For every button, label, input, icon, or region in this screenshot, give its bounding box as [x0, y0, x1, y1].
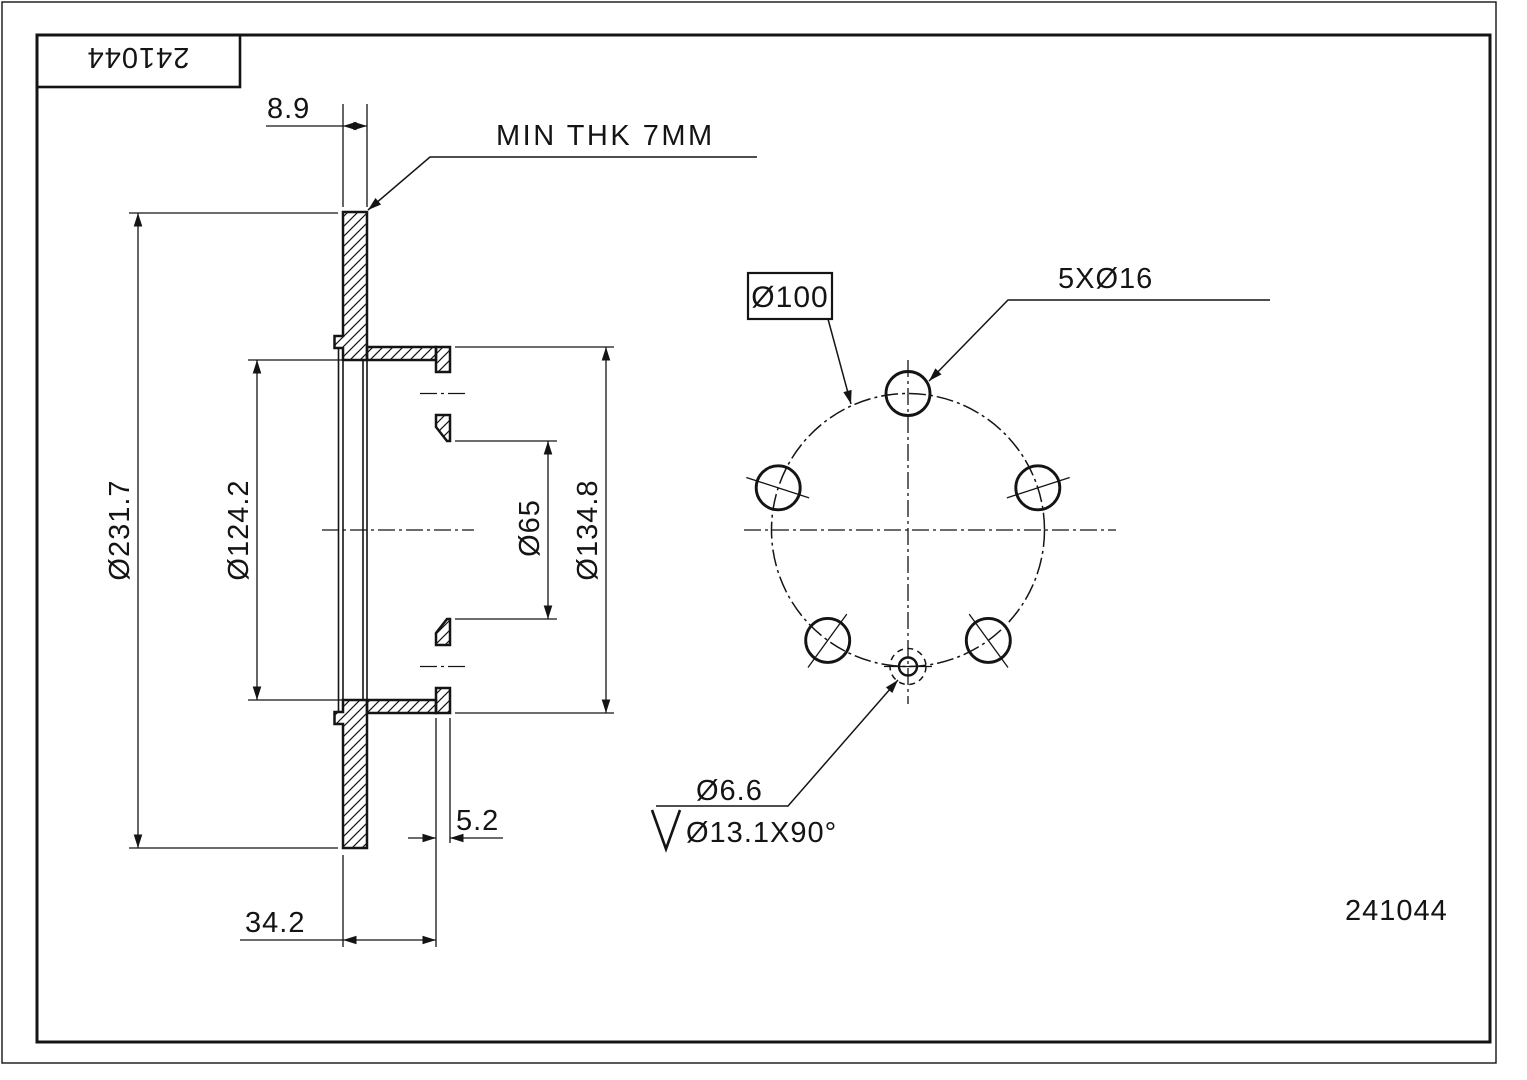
- dim-center-bore-label: Ø65: [514, 499, 546, 557]
- dim-thickness-label: 8.9: [267, 93, 310, 125]
- technical-drawing: 241044 241044: [0, 0, 1527, 1080]
- title-block-part-number: 241044: [87, 41, 190, 73]
- dim-hat-inner-diameter-label: Ø124.2: [223, 479, 255, 580]
- flange-upper-chamfer-section: [436, 415, 450, 441]
- face-view: Ø100 5XØ16 Ø6.6 Ø13.1X90°: [652, 263, 1270, 849]
- flange-lower-section: [436, 688, 450, 713]
- section-view: 8.9 MIN THK 7MM Ø231.7 Ø124.2 Ø65: [104, 93, 757, 947]
- flange-upper-section: [436, 347, 450, 372]
- friction-ring-upper-section: [335, 212, 368, 360]
- footer-part-number: 241044: [1345, 895, 1448, 927]
- dim-locating-hole-label: Ø6.6: [696, 775, 763, 807]
- dim-outer-diameter-label: Ø231.7: [104, 479, 136, 580]
- dim-countersink-label: Ø13.1X90°: [686, 817, 837, 849]
- friction-ring-lower-section: [335, 700, 368, 848]
- locating-hole-leader: [656, 680, 898, 806]
- min-thickness-leader: [368, 157, 757, 210]
- dim-bolt-holes-label: 5XØ16: [1058, 263, 1153, 295]
- bolt-circle-leader: [828, 319, 851, 404]
- countersink-icon: [652, 810, 680, 849]
- hat-wall-lower-section: [367, 700, 436, 713]
- drawing-sheet: 241044 241044: [0, 0, 1527, 1080]
- dim-flange-thickness-label: 5.2: [456, 805, 499, 837]
- bolt-holes-leader: [929, 300, 1270, 381]
- face-centerlines: [744, 360, 1116, 704]
- min-thickness-note: MIN THK 7MM: [496, 120, 715, 152]
- dim-bolt-circle-label: Ø100: [751, 281, 828, 314]
- dim-flange-diameter-label: Ø134.8: [572, 479, 604, 580]
- flange-lower-chamfer-section: [436, 619, 450, 645]
- dim-overall-width-label: 34.2: [245, 907, 305, 939]
- hat-wall-upper-section: [367, 347, 436, 360]
